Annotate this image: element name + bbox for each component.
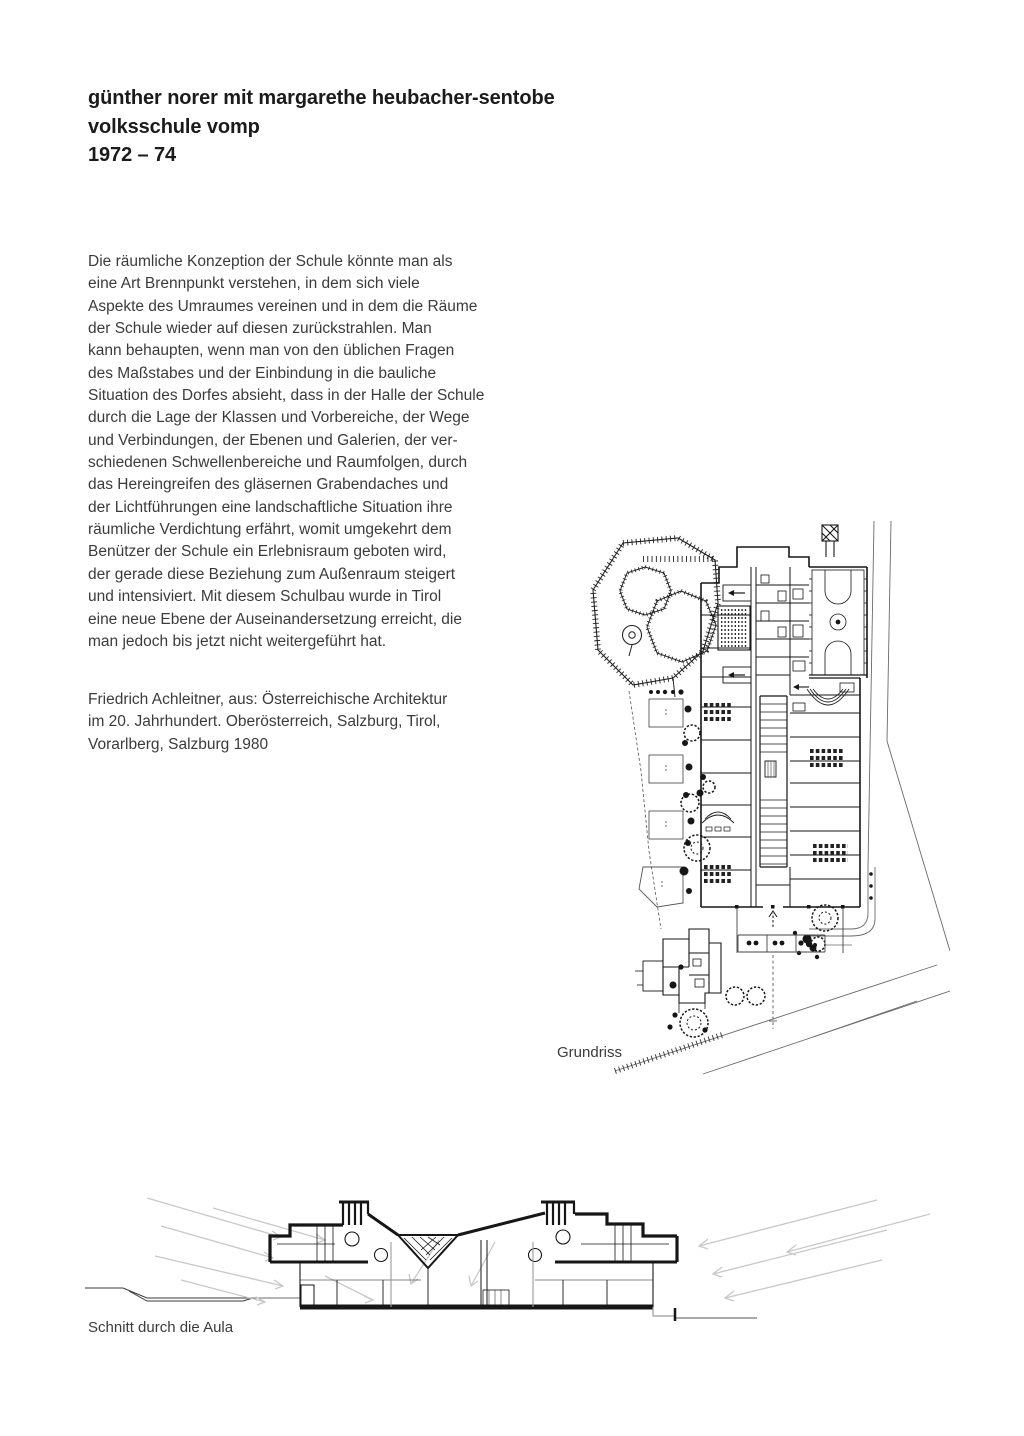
right-clerestory bbox=[541, 1202, 575, 1225]
entry-plaza bbox=[735, 905, 845, 1029]
plan-arrows bbox=[728, 590, 809, 927]
paragraph-line: eine neue Ebene der Auseinandersetzung e… bbox=[88, 609, 548, 631]
octagon-playground bbox=[593, 538, 718, 697]
credit-line: Friedrich Achleitner, aus: Österreichisc… bbox=[88, 689, 548, 711]
paragraph-line: durch die Lage der Klassen und Vorbereic… bbox=[88, 407, 548, 429]
paragraph-line: des Maßstabes und der Einbindung in die … bbox=[88, 363, 548, 385]
left-clerestory bbox=[339, 1202, 369, 1225]
paragraph-line: Die räumliche Konzeption der Schule könn… bbox=[88, 251, 548, 273]
garden-courts bbox=[629, 691, 683, 929]
chimney bbox=[822, 525, 838, 557]
title-line-project: volksschule vomp bbox=[88, 113, 555, 142]
paragraph-line: und Verbindungen, der Ebenen und Galerie… bbox=[88, 430, 548, 452]
book-page: günther norer mit margarethe heubacher-s… bbox=[0, 0, 1024, 1436]
paragraph-line: Benützer der Schule ein Erlebnisraum geb… bbox=[88, 541, 548, 563]
paragraph-line: Aspekte des Umraumes vereinen und in dem… bbox=[88, 296, 548, 318]
paragraph-line: der gerade diese Beziehung zum Außenraum… bbox=[88, 564, 548, 586]
right-wing bbox=[555, 1214, 677, 1262]
paragraph-line: man jedoch bis jetzt nicht weitergeführt… bbox=[88, 631, 548, 653]
credit-line: im 20. Jahrhundert. Oberösterreich, Salz… bbox=[88, 711, 548, 733]
section-drawing bbox=[85, 1192, 930, 1324]
ground-left bbox=[85, 1288, 300, 1301]
school-building bbox=[701, 525, 867, 907]
description-paragraph: Die räumliche Konzeption der Schule könn… bbox=[88, 251, 548, 653]
caretaker-house bbox=[635, 929, 721, 1013]
title-line-architects: günther norer mit margarethe heubacher-s… bbox=[88, 84, 555, 113]
desk-rows bbox=[704, 705, 848, 881]
seating-arcs bbox=[702, 689, 849, 823]
paragraph-line: der Lichtführungen eine landschaftliche … bbox=[88, 497, 548, 519]
building-section bbox=[270, 1202, 677, 1307]
floor-plan-drawing bbox=[585, 515, 950, 1075]
credit-line: Vorarlberg, Salzburg 1980 bbox=[88, 734, 548, 756]
dotted-court bbox=[718, 606, 750, 650]
left-wing bbox=[270, 1225, 368, 1262]
section-caption: Schnitt durch die Aula bbox=[88, 1319, 233, 1337]
paragraph-line: schiedenen Schwellenbereiche und Raumfol… bbox=[88, 452, 548, 474]
title-block: günther norer mit margarethe heubacher-s… bbox=[88, 84, 555, 170]
paragraph-line: der Schule wieder auf diesen zurückstrah… bbox=[88, 318, 548, 340]
paragraph-line: das Hereingreifen des gläsernen Grabenda… bbox=[88, 474, 548, 496]
paragraph-line: eine Art Brennpunkt verstehen, in dem si… bbox=[88, 273, 548, 295]
tree-symbols bbox=[680, 725, 838, 1037]
paragraph-line: und intensiviert. Mit diesem Schulbau wu… bbox=[88, 586, 548, 608]
paragraph-line: räumliche Verdichtung erfährt, womit umg… bbox=[88, 519, 548, 541]
paragraph-line: kann behaupten, wenn man von den übliche… bbox=[88, 340, 548, 362]
ground-right bbox=[675, 1308, 757, 1321]
glass-valley-roof bbox=[398, 1235, 458, 1268]
credit-paragraph: Friedrich Achleitner, aus: Österreichisc… bbox=[88, 689, 548, 756]
central-hall bbox=[751, 567, 790, 907]
sports-court bbox=[809, 570, 867, 678]
paragraph-line: Situation des Dorfes absieht, dass in de… bbox=[88, 385, 548, 407]
plan-caption: Grundriss bbox=[557, 1044, 622, 1062]
title-line-years: 1972 – 74 bbox=[88, 141, 555, 170]
